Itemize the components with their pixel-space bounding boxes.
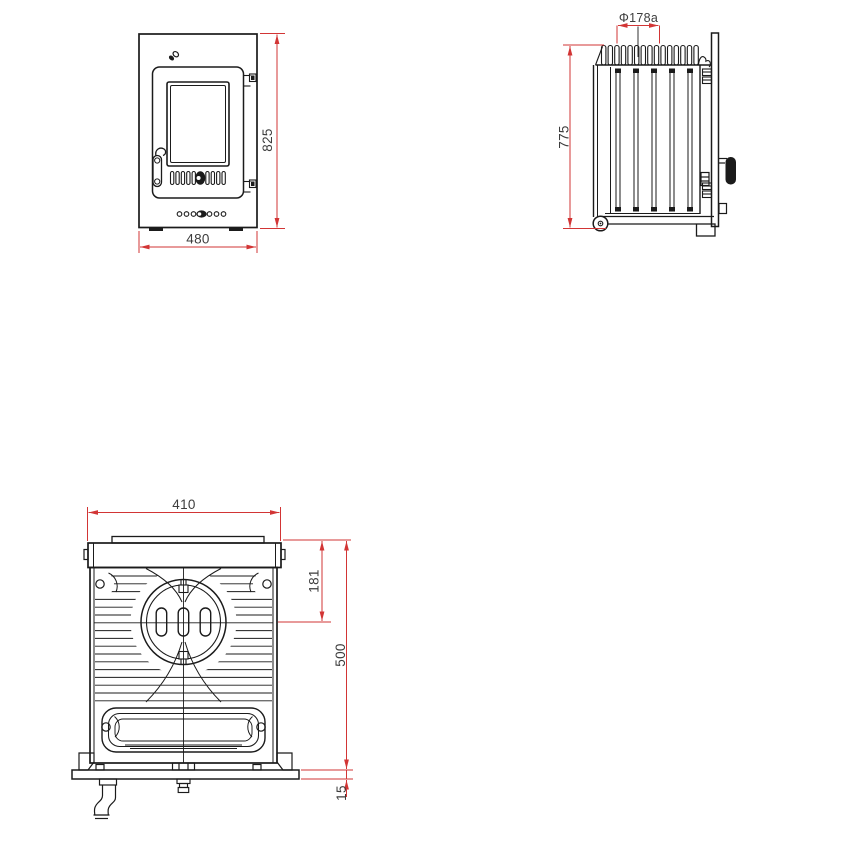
- front-foot-left: [149, 228, 163, 232]
- rear-width-dim-label: 410: [172, 497, 195, 512]
- side-cooling-fins: [596, 46, 712, 68]
- side-body: [594, 65, 701, 217]
- technical-drawing-canvas: 825 480: [0, 0, 862, 861]
- air-vent-slots: [171, 171, 226, 185]
- side-view: Φ178a 775: [557, 11, 737, 236]
- door-hinge-top: [244, 74, 257, 86]
- side-hinge-top: [703, 69, 712, 84]
- drain-pipe-elbow: [94, 779, 117, 819]
- rear-base-plate: [72, 770, 299, 779]
- primary-air-holes: [177, 210, 226, 217]
- front-view: 825 480: [139, 34, 285, 254]
- rear-width-dimension: 410: [88, 497, 281, 541]
- rear-flue-offset-dim-label: 181: [307, 569, 322, 592]
- rear-view: 410 181 500 15: [72, 497, 353, 819]
- front-outer-frame: [139, 34, 257, 231]
- rear-base-thickness-dimension: 15: [301, 770, 353, 801]
- door-hinge-bottom: [244, 180, 257, 192]
- front-foot-right: [229, 228, 243, 232]
- rear-top-bar: [84, 543, 285, 568]
- door-window-glass: [167, 82, 229, 166]
- flue-diameter-dim-label: Φ178a: [619, 11, 658, 25]
- rear-bar-tab-left: [84, 550, 88, 560]
- stove-three-view-drawing: 825 480: [0, 0, 862, 861]
- rear-top-plate: [112, 537, 264, 544]
- side-lower-block: [719, 204, 727, 214]
- rear-base-brackets: [79, 753, 292, 770]
- base-center-fitting: [177, 779, 190, 793]
- side-front-plate: [712, 33, 719, 227]
- front-height-dim-label: 825: [260, 128, 275, 151]
- side-body-ribs: [615, 69, 693, 212]
- side-height-dimension: 775: [557, 45, 607, 229]
- latch-knob: [168, 50, 180, 61]
- side-bottom-bar: [602, 217, 715, 237]
- front-width-dimension: 480: [139, 231, 257, 253]
- side-door-handle: [719, 157, 737, 214]
- rear-centerlines: [94, 568, 273, 764]
- rear-height-dim-label: 500: [333, 643, 348, 666]
- door-handle: [153, 148, 166, 186]
- rear-center-foot: [173, 763, 195, 770]
- front-width-dim-label: 480: [186, 232, 209, 247]
- rear-flue-offset-dimension: 181: [278, 540, 351, 622]
- front-height-dimension: 825: [260, 34, 285, 229]
- side-height-dim-label: 775: [557, 125, 572, 148]
- rear-base-thickness-dim-label: 15: [334, 785, 349, 801]
